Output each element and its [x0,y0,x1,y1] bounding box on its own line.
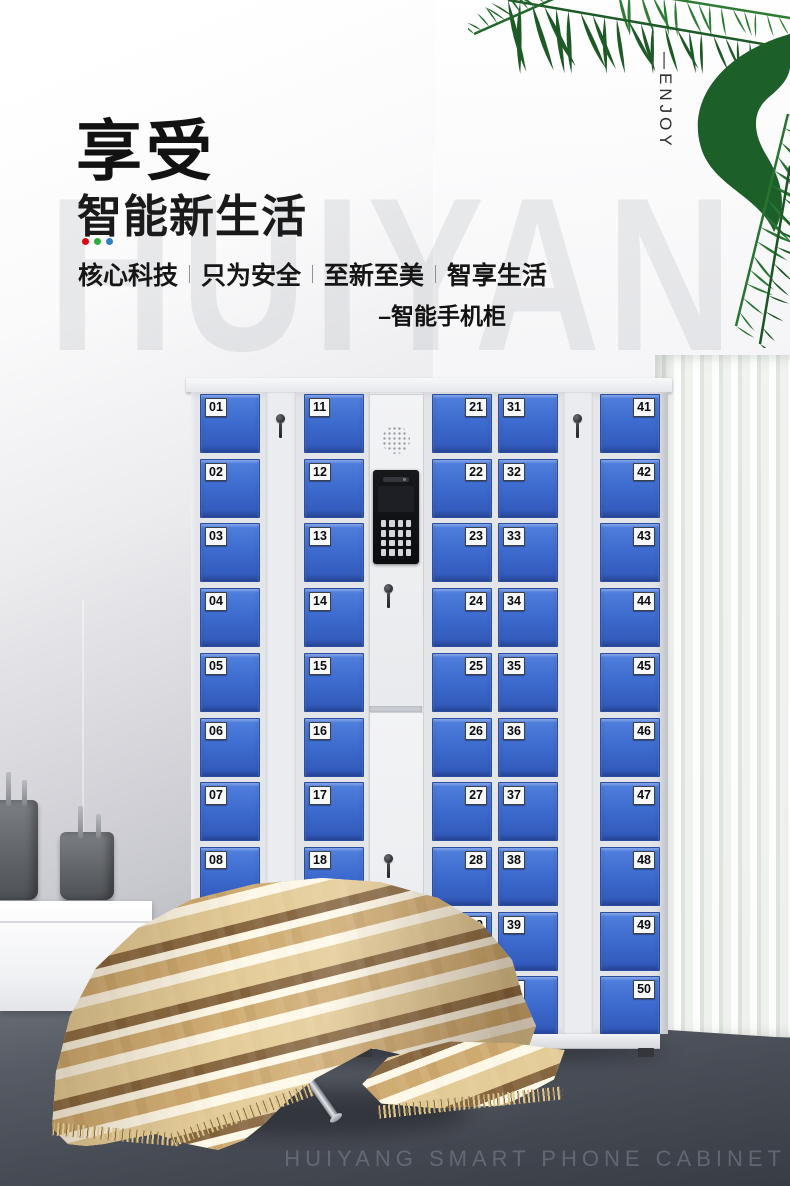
speaker-grille [382,426,410,454]
hanging-key [279,423,282,438]
locker-door: 11 [304,394,364,453]
locker-door: 06 [200,718,260,777]
intercom-screen [378,486,414,512]
keypad-key [398,549,403,556]
locker-door: 15 [304,653,364,712]
decor-vase [60,832,114,900]
palm-leaflet [485,6,497,23]
palm-leaflet [677,29,698,68]
locker-number-label: 41 [633,398,655,417]
vertical-enjoy-label: —ENJOY [655,52,675,150]
hanging-key [576,423,579,438]
palm-leaflet [767,14,774,37]
locker-number-label: 46 [633,722,655,741]
accent-dot [106,238,113,245]
keypad-key [381,549,386,556]
palm-leaflet [765,312,783,322]
locker-number-label: 44 [633,592,655,611]
keypad-key [389,520,394,527]
palm-leaflet [628,0,631,36]
palm-leaflet [567,10,572,73]
keypad-key [406,540,411,547]
locker-door: 24 [432,588,492,647]
palm-leaflet [700,33,703,74]
locker-door: 28 [432,847,492,906]
locker-door: 31 [498,394,558,453]
locker-number-label: 38 [503,851,525,870]
locker-number-label: 01 [205,398,227,417]
locker-number-label: 37 [503,786,525,805]
locker-door: 04 [200,588,260,647]
palm-leaflet [709,5,712,37]
locker-door: 47 [600,782,660,841]
locker-number-label: 32 [503,463,525,482]
palm-leaflet [768,295,789,303]
palm-leaflet [721,7,726,37]
locker-door: 38 [498,847,558,906]
locker-number-label: 48 [633,851,655,870]
keypad-key [398,520,403,527]
keypad-key [381,540,386,547]
accent-dots [82,238,113,245]
locker-number-label: 49 [633,916,655,935]
headline-sub: 智能新生活 [77,180,307,245]
keypad-key [389,530,394,537]
cabinet-top-cap [186,378,672,393]
locker-number-label: 06 [205,722,227,741]
palm-leaflet [733,9,747,34]
locker-door: 16 [304,718,364,777]
hanging-key [387,863,390,878]
accent-dot [94,238,101,245]
locker-number-label: 11 [309,398,330,417]
locker-number-label: 16 [309,722,331,741]
keypad-key [406,520,411,527]
locker-door: 33 [498,523,558,582]
keypad-key [389,540,394,547]
locker-number-label: 33 [503,527,525,546]
locker-number-label: 21 [465,398,487,417]
locker-number-label: 45 [633,657,655,676]
palm-leaflet [785,198,790,220]
locker-door: 44 [600,588,660,647]
palm-leaflet [757,241,788,260]
locker-door: 02 [200,459,260,518]
decor-vase [0,800,38,900]
control-lock [384,584,393,593]
tagline-item: 至新至美 [324,256,424,292]
palm-leaflet [760,344,773,348]
locker-door: 17 [304,782,364,841]
locker-door: 22 [432,459,492,518]
tagline-separator: | [311,263,314,285]
locker-number-label: 42 [633,463,655,482]
palm-leaflet [739,312,754,331]
strip-lock [573,414,582,423]
decor-vase-stick [6,772,11,806]
decor-vase-stick [78,806,83,838]
locker-number-label: 15 [309,657,331,676]
strip-lock [276,414,285,423]
keypad-key [398,540,403,547]
palm-leaflet [468,25,474,34]
locker-door: 34 [498,588,558,647]
locker-number-label: 39 [503,916,525,935]
locker-number-label: 17 [309,786,331,805]
tagline-item: 智享生活 [447,256,547,292]
locker-number-label: 07 [205,786,227,805]
locker-number-label: 26 [465,722,487,741]
locker-number-label: 34 [503,592,525,611]
locker-door: 36 [498,718,558,777]
locker-number-label: 35 [503,657,525,676]
palm-leaflet [532,4,554,70]
locker-door: 41 [600,394,660,453]
decor-vase-stick [22,780,27,806]
right-lock-strip [563,392,593,1034]
locker-door: 26 [432,718,492,777]
keypad-key [406,530,411,537]
locker-door: 32 [498,459,558,518]
locker-number-label: 03 [205,527,227,546]
locker-number-label: 27 [465,786,487,805]
service-door-lock [384,854,393,863]
locker-door: 50 [600,976,660,1035]
keypad-key [398,530,403,537]
accent-dot [82,238,89,245]
locker-door: 25 [432,653,492,712]
product-label: –智能手机柜 [78,297,506,331]
locker-number-label: 23 [465,527,487,546]
locker-door: 35 [498,653,558,712]
locker-door: 07 [200,782,260,841]
hanging-key [387,593,390,608]
locker-door: 27 [432,782,492,841]
palm-leaflet [771,279,789,296]
locker-number-label: 08 [205,851,227,870]
palm-leaflet [674,0,677,37]
palm-leaflet [763,328,775,341]
palm-leaflet [629,21,654,68]
locker-number-label: 14 [309,592,331,611]
locker-number-label: 43 [633,527,655,546]
keypad [381,520,411,556]
cabinet-foot [638,1048,654,1057]
tagline-separator: | [188,263,191,285]
locker-door: 05 [200,653,260,712]
locker-number-label: 36 [503,722,525,741]
palm-leaflet [774,263,790,282]
locker-door: 49 [600,912,660,971]
locker-door: 03 [200,523,260,582]
locker-number-label: 50 [633,980,655,999]
locker-number-label: 28 [465,851,487,870]
promo-poster: HUIYAN 010203040506070809101112131415161… [0,0,790,1186]
locker-number-label: 02 [205,463,227,482]
locker-door: 43 [600,523,660,582]
locker-number-label: 24 [465,592,487,611]
locker-number-label: 13 [309,527,331,546]
locker-door: 13 [304,523,364,582]
console-drawer-seam [0,921,152,923]
locker-number-label: 25 [465,657,487,676]
locker-number-label: 04 [205,592,227,611]
keypad-key [389,549,394,556]
locker-door: 21 [432,394,492,453]
palm-leaflet [651,25,654,74]
palm-leaflet [713,35,728,71]
palm-leaflet [779,16,789,35]
locker-door: 23 [432,523,492,582]
locker-door: 01 [200,394,260,453]
tagline-item: 核心科技 [78,256,178,292]
locker-number-label: 31 [503,398,525,417]
locker-door: 48 [600,847,660,906]
tagline-separator: | [434,263,437,285]
locker-door: 45 [600,653,660,712]
monstera-leaf [698,34,790,232]
locker-number-label: 47 [633,786,655,805]
palm-leaflet [477,13,490,27]
tagline-item: 只为安全 [201,256,301,292]
locker-number-label: 18 [309,851,331,870]
locker-door: 37 [498,782,558,841]
palm-leaflet [754,12,756,37]
locker-door: 46 [600,718,660,777]
intercom-panel [373,470,419,564]
footer-watermark: HUIYANG SMART PHONE CABINET [284,1146,786,1172]
decor-vase-stick [96,814,101,838]
locker-number-label: 12 [309,463,331,482]
locker-door: 14 [304,588,364,647]
keypad-key [406,549,411,556]
sheer-curtain [655,355,790,1037]
palm-leaflet [603,17,607,74]
locker-number-label: 22 [465,463,487,482]
locker-door: 42 [600,459,660,518]
palm-leaflet [617,19,625,74]
palm-leaflet [743,298,764,315]
intercom-camera [403,478,406,481]
keypad-key [381,530,386,537]
tagline: 核心科技|只为安全|至新至美|智享生活 [78,256,547,292]
locker-door: 12 [304,459,364,518]
locker-number-label: 05 [205,657,227,676]
keypad-key [381,520,386,527]
palm-leaves-decoration [468,0,790,348]
